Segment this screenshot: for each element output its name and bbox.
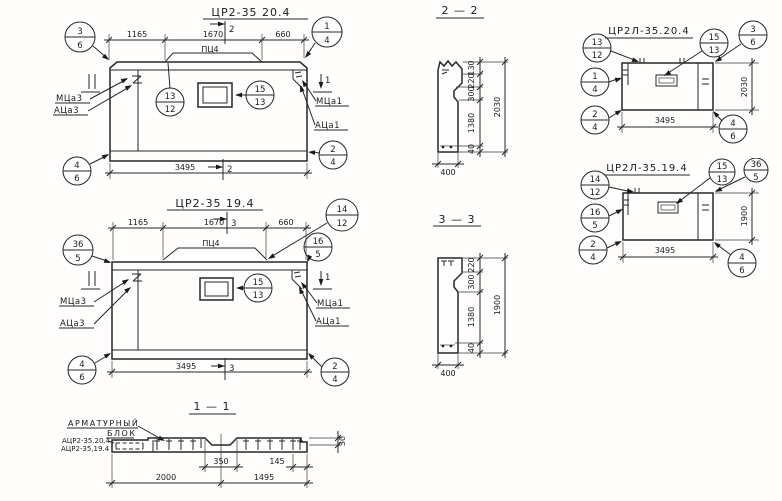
dim-3495: 3495 xyxy=(176,362,196,371)
top-plate xyxy=(163,248,267,260)
svg-text:36: 36 xyxy=(751,160,762,170)
svg-text:6: 6 xyxy=(730,132,735,142)
callout-window: 15 13 xyxy=(235,81,274,109)
callout-left: 16 5 xyxy=(581,204,624,232)
svg-text:4: 4 xyxy=(79,360,84,370)
svg-text:15: 15 xyxy=(255,85,266,95)
svg-text:4: 4 xyxy=(332,375,337,385)
callout-bl: 2 4 xyxy=(579,236,623,264)
corbel-detail-right xyxy=(292,270,302,289)
dimension-bottom: 3495 xyxy=(617,112,718,133)
cut1-marker-left xyxy=(81,271,100,289)
svg-text:5: 5 xyxy=(753,173,758,183)
svg-text:БЛОК: БЛОК xyxy=(107,429,136,438)
window-opening xyxy=(658,202,678,213)
drawing-sheet: ЦР2-35 20.4 2 1165 1670 660 ПЦ4 xyxy=(0,0,782,501)
dim-2000: 2000 xyxy=(156,473,176,482)
window-opening xyxy=(200,278,233,300)
svg-text:4: 4 xyxy=(590,253,595,263)
label-aca1: АЦа1 xyxy=(298,84,348,131)
dimension-height: 2030 xyxy=(715,58,759,115)
svg-text:2: 2 xyxy=(590,240,595,250)
svg-text:36: 36 xyxy=(73,240,84,250)
svg-text:13: 13 xyxy=(709,46,720,56)
section-profile xyxy=(438,258,462,353)
section-2-2: 2 — 2 130 220 300 1380 40 2030 400 xyxy=(405,0,540,192)
svg-text:4: 4 xyxy=(324,36,329,46)
dimension-width: 400 xyxy=(432,153,464,177)
label-aca3: АЦа3 xyxy=(59,285,133,329)
ref-label-19: АЦР2-35,19.4 xyxy=(61,445,110,453)
svg-text:14: 14 xyxy=(337,205,348,215)
svg-text:4: 4 xyxy=(592,123,597,133)
callout-br: 4 6 xyxy=(711,109,747,143)
dimension-width: 400 xyxy=(432,354,464,378)
cut1-number: 1 xyxy=(325,273,330,283)
svg-text:4: 4 xyxy=(74,161,79,171)
dimension-chain-right: 220 300 1380 40 1900 xyxy=(455,253,508,358)
dim-145: 145 xyxy=(269,457,284,466)
svg-text:6: 6 xyxy=(77,41,82,51)
svg-text:15: 15 xyxy=(717,162,728,172)
callout-tl: 3 6 xyxy=(65,22,111,62)
view-title: ЦР2-35 20.4 xyxy=(211,6,290,19)
svg-text:5: 5 xyxy=(75,254,80,264)
svg-text:6: 6 xyxy=(750,38,755,48)
callout-bl: 4 6 xyxy=(63,152,110,185)
cut1-marker-right: 1 xyxy=(313,271,332,289)
callout-tr: 16 5 xyxy=(304,233,332,263)
cut1-marker-left xyxy=(81,74,100,92)
svg-text:13: 13 xyxy=(253,291,264,301)
callout-br: 4 6 xyxy=(712,240,756,277)
svg-text:6: 6 xyxy=(74,174,79,184)
view-side-19: ЦР2Л-35.19.4 1900 3495 14 12 15 13 xyxy=(565,158,782,293)
callout-br: 2 4 xyxy=(306,351,349,386)
view-front-20: ЦР2-35 20.4 2 1165 1670 660 ПЦ4 xyxy=(40,0,390,192)
svg-text:2: 2 xyxy=(332,362,337,372)
svg-text:12: 12 xyxy=(165,105,176,115)
panel-outline xyxy=(622,58,713,110)
svg-text:12: 12 xyxy=(590,188,601,198)
panel-outline: ПЦ4 xyxy=(110,45,307,161)
svg-text:4: 4 xyxy=(592,85,597,95)
section-title: 3 — 3 xyxy=(439,213,476,226)
dim-660: 660 xyxy=(275,30,290,39)
svg-text:16: 16 xyxy=(590,208,601,218)
dim-300: 300 xyxy=(467,274,476,289)
panel-outline xyxy=(623,188,713,240)
dim-1670: 1670 xyxy=(203,30,223,39)
svg-text:15: 15 xyxy=(709,33,720,43)
panel-outline: ПЦ4 xyxy=(112,239,307,359)
dim-1380: 1380 xyxy=(467,113,476,133)
svg-text:12: 12 xyxy=(592,51,603,61)
svg-text:13: 13 xyxy=(165,92,176,102)
dimension-edge: 145 xyxy=(269,454,313,472)
dim-2030: 2030 xyxy=(493,97,502,117)
svg-text:15: 15 xyxy=(253,278,264,288)
cut-number: 2 xyxy=(227,165,232,175)
view-side-20: ЦР2Л-35.20.4 2030 3495 13 12 15 13 xyxy=(565,5,782,157)
dim-1380: 1380 xyxy=(467,307,476,327)
cut-number: 2 xyxy=(229,25,234,35)
dim-40: 40 xyxy=(467,144,476,154)
svg-text:4: 4 xyxy=(739,253,744,263)
dimension-thickness: 30 xyxy=(309,431,347,453)
dim-3495: 3495 xyxy=(655,116,675,125)
dim-220: 220 xyxy=(467,257,476,272)
ref-label-20: АЦР2-35.20.4 xyxy=(62,437,111,445)
window-opening xyxy=(656,75,677,86)
dim-300: 300 xyxy=(467,86,476,101)
callout-tr-far: 14 12 xyxy=(267,199,358,261)
dim-130: 130 xyxy=(467,60,476,75)
svg-text:3: 3 xyxy=(77,27,82,37)
svg-text:6: 6 xyxy=(739,266,744,276)
top-plate xyxy=(165,53,262,62)
dim-400: 400 xyxy=(440,369,455,378)
callout-br: 2 4 xyxy=(308,141,347,169)
dim-400: 400 xyxy=(440,168,455,177)
anchor-detail-left xyxy=(132,76,142,83)
dimension-chain-right: 130 220 300 1380 40 2030 xyxy=(455,57,508,157)
svg-text:2: 2 xyxy=(330,145,335,155)
dim-2030: 2030 xyxy=(740,77,749,97)
callout-tr: 1 4 xyxy=(303,17,342,59)
dim-3495: 3495 xyxy=(655,246,675,255)
dim-220: 220 xyxy=(467,73,476,88)
cut-number: 3 xyxy=(229,364,234,374)
svg-text:1: 1 xyxy=(592,72,597,82)
callout-bl: 2 4 xyxy=(581,106,623,134)
dim-1670: 1670 xyxy=(204,218,224,227)
view-title: ЦР2Л-35.20.4 xyxy=(608,26,689,37)
dim-1165: 1165 xyxy=(127,30,147,39)
dim-350: 350 xyxy=(213,457,228,466)
svg-text:14: 14 xyxy=(590,175,601,185)
dimension-bottom: 3495 xyxy=(618,242,718,263)
callout-bl: 4 6 xyxy=(68,351,112,384)
cut1-marker-right: 1 xyxy=(313,74,332,92)
beam-section xyxy=(112,438,307,452)
callout-left: 1 4 xyxy=(581,68,623,96)
callout-mid: 13 12 xyxy=(156,63,184,116)
section-title: 1 — 1 xyxy=(194,400,231,413)
svg-text:4: 4 xyxy=(730,119,735,129)
svg-text:13: 13 xyxy=(255,98,266,108)
callout-tl: 36 5 xyxy=(63,235,112,265)
dim-3495: 3495 xyxy=(175,163,195,172)
svg-text:5: 5 xyxy=(592,221,597,231)
svg-text:12: 12 xyxy=(337,219,348,229)
svg-text:1: 1 xyxy=(324,22,329,32)
anchor-detail-left xyxy=(132,274,142,281)
dim-1900: 1900 xyxy=(740,206,749,226)
svg-text:13: 13 xyxy=(717,175,728,185)
section-1-1: 1 — 1 АРМАТУРНЫЙ БЛОК АЦР2-35.20.4 АЦР2-… xyxy=(50,393,390,501)
callout-window: 15 13 xyxy=(236,274,272,302)
dimension-bottom: 3495 3 xyxy=(107,358,312,380)
svg-text:4: 4 xyxy=(330,158,335,168)
dimension-bottom: 3495 2 xyxy=(105,159,312,180)
dimension-height: 1900 xyxy=(715,188,759,245)
section-profile xyxy=(438,61,462,152)
view-title: ЦР2Л-35.19.4 xyxy=(606,163,687,174)
dim-1900: 1900 xyxy=(493,295,502,315)
section-3-3: 3 — 3 220 300 1380 40 1900 400 xyxy=(405,195,540,395)
cut1-number: 1 xyxy=(325,76,330,86)
svg-text:6: 6 xyxy=(79,373,84,383)
dim-660: 660 xyxy=(278,218,293,227)
view-front-19: ЦР2-35 19.4 3 1165 1670 660 ПЦ4 xyxy=(40,192,390,395)
dim-30: 30 xyxy=(338,436,347,446)
view-title: ЦР2-35 19.4 xyxy=(175,197,254,210)
section-title: 2 — 2 xyxy=(442,4,479,17)
dim-1495: 1495 xyxy=(254,473,274,482)
svg-text:5: 5 xyxy=(315,250,320,260)
dim-1165: 1165 xyxy=(128,218,148,227)
callout-tl: 13 12 xyxy=(583,34,640,64)
svg-text:13: 13 xyxy=(592,38,603,48)
svg-text:16: 16 xyxy=(313,237,324,247)
plate-label: ПЦ4 xyxy=(201,45,218,54)
svg-text:2: 2 xyxy=(592,110,597,120)
dim-40: 40 xyxy=(467,343,476,353)
label-mca3: МЦа3 xyxy=(55,76,129,104)
svg-text:3: 3 xyxy=(750,25,755,35)
window-opening xyxy=(198,83,232,107)
plate-label: ПЦ4 xyxy=(202,239,219,248)
svg-text:АРМАТУРНЫЙ: АРМАТУРНЫЙ xyxy=(68,417,139,428)
